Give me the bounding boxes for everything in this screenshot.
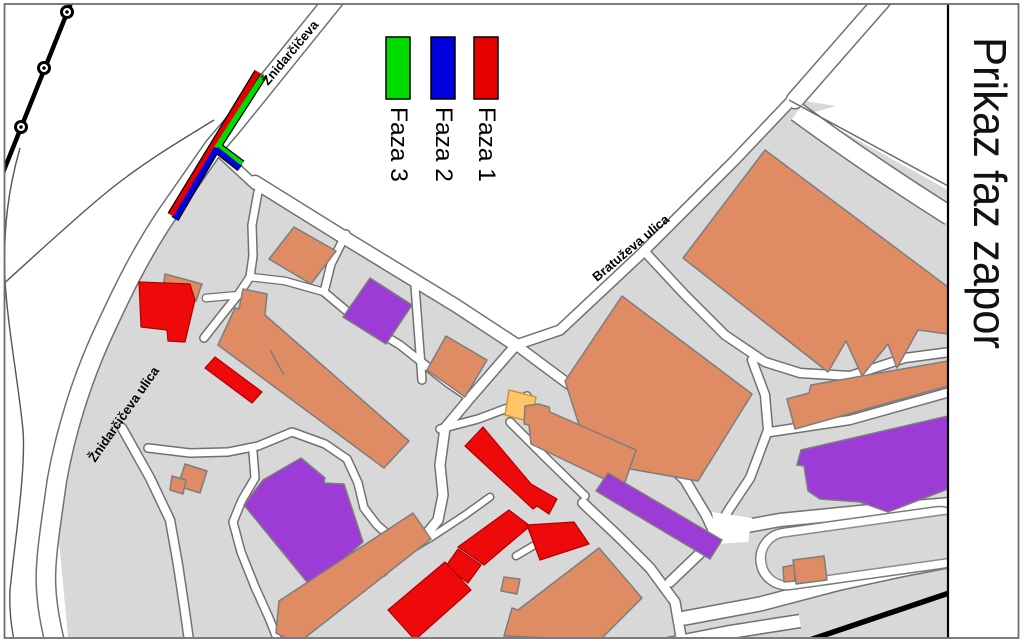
svg-text:Faza 3: Faza 3 bbox=[385, 107, 412, 182]
svg-text:Prikaz faz zapor: Prikaz faz zapor bbox=[964, 37, 1016, 349]
svg-text:Faza 2: Faza 2 bbox=[430, 107, 457, 182]
svg-text:Faza 1: Faza 1 bbox=[473, 107, 500, 182]
